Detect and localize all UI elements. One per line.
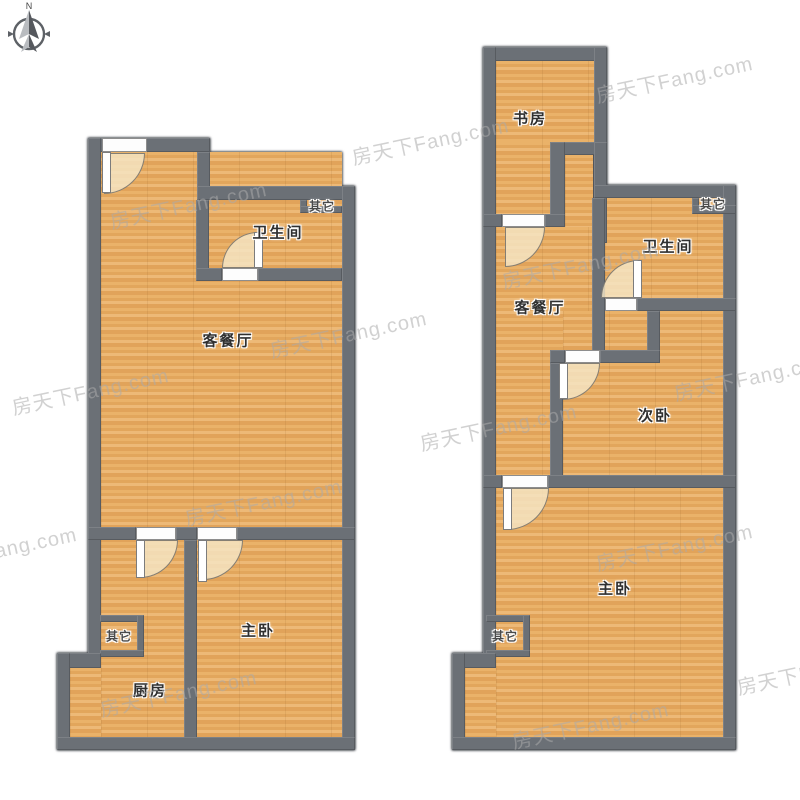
wall-segment bbox=[184, 540, 197, 750]
room-label-study: 书房 bbox=[513, 108, 547, 129]
door-opening bbox=[605, 298, 637, 311]
floor-plan-right: 书房 卫生间 其它 客餐厅 次卧 主卧 其它 bbox=[450, 45, 740, 755]
door-opening bbox=[197, 527, 237, 540]
floor-area bbox=[70, 668, 101, 737]
wall-segment bbox=[483, 214, 502, 227]
door-opening bbox=[502, 214, 545, 227]
door-opening bbox=[136, 527, 176, 540]
room-label-living-dining: 客餐厅 bbox=[514, 297, 565, 318]
door-leaf bbox=[559, 363, 568, 399]
room-label-other-top: 其它 bbox=[700, 196, 726, 213]
wall-segment bbox=[637, 298, 736, 311]
door-opening bbox=[222, 268, 258, 281]
room-label-other-left: 其它 bbox=[106, 628, 132, 645]
room-label-bathroom: 卫生间 bbox=[252, 222, 303, 243]
wall-segment bbox=[723, 185, 736, 750]
wall-segment bbox=[548, 475, 736, 488]
wall-segment bbox=[545, 214, 565, 227]
wall-segment bbox=[483, 47, 607, 61]
door-leaf bbox=[136, 540, 145, 578]
wall-segment bbox=[258, 268, 342, 281]
room-label-second-bedroom: 次卧 bbox=[638, 405, 672, 426]
door-opening bbox=[565, 350, 600, 363]
floor-plan-left: 客餐厅 卫生间 其它 主卧 厨房 其它 bbox=[55, 135, 360, 755]
wall-segment bbox=[483, 47, 496, 668]
room-label-master-bedroom: 主卧 bbox=[598, 578, 632, 599]
door-opening bbox=[502, 475, 548, 488]
wall-segment bbox=[483, 475, 502, 488]
floor-area bbox=[563, 311, 723, 488]
room-label-other-top: 其它 bbox=[309, 198, 335, 215]
room-label-kitchen: 厨房 bbox=[133, 680, 167, 701]
wall-segment bbox=[342, 186, 355, 750]
door-opening bbox=[102, 138, 147, 152]
compass-icon: N bbox=[5, 0, 53, 60]
door-leaf bbox=[102, 152, 111, 193]
wall-segment bbox=[88, 138, 101, 668]
wall-segment bbox=[452, 653, 465, 750]
floor-area bbox=[465, 668, 496, 737]
floor-area bbox=[565, 155, 593, 227]
wall-segment bbox=[100, 650, 144, 657]
room-label-other-left: 其它 bbox=[492, 628, 518, 645]
wall-segment bbox=[196, 268, 222, 281]
door-leaf bbox=[198, 540, 207, 582]
watermark: 房天下Fang.com bbox=[734, 639, 800, 701]
wall-segment bbox=[550, 350, 565, 363]
wall-segment bbox=[88, 527, 136, 540]
wall-segment bbox=[176, 527, 197, 540]
compass-north-label: N bbox=[26, 1, 33, 11]
wall-segment bbox=[600, 350, 660, 363]
wall-segment bbox=[452, 737, 736, 750]
door-leaf bbox=[633, 260, 642, 298]
floor-area bbox=[496, 488, 723, 737]
room-label-living-dining: 客餐厅 bbox=[202, 330, 253, 351]
door-leaf bbox=[503, 488, 512, 530]
room-label-bathroom: 卫生间 bbox=[642, 236, 693, 257]
room-label-master-bedroom: 主卧 bbox=[241, 620, 275, 641]
wall-segment bbox=[57, 737, 355, 750]
floor-plan-page: { "compass": { "north_label": "N" }, "wa… bbox=[0, 0, 800, 800]
wall-segment bbox=[57, 653, 70, 750]
wall-segment bbox=[592, 198, 605, 356]
wall-segment bbox=[594, 47, 607, 157]
wall-segment bbox=[237, 527, 355, 540]
